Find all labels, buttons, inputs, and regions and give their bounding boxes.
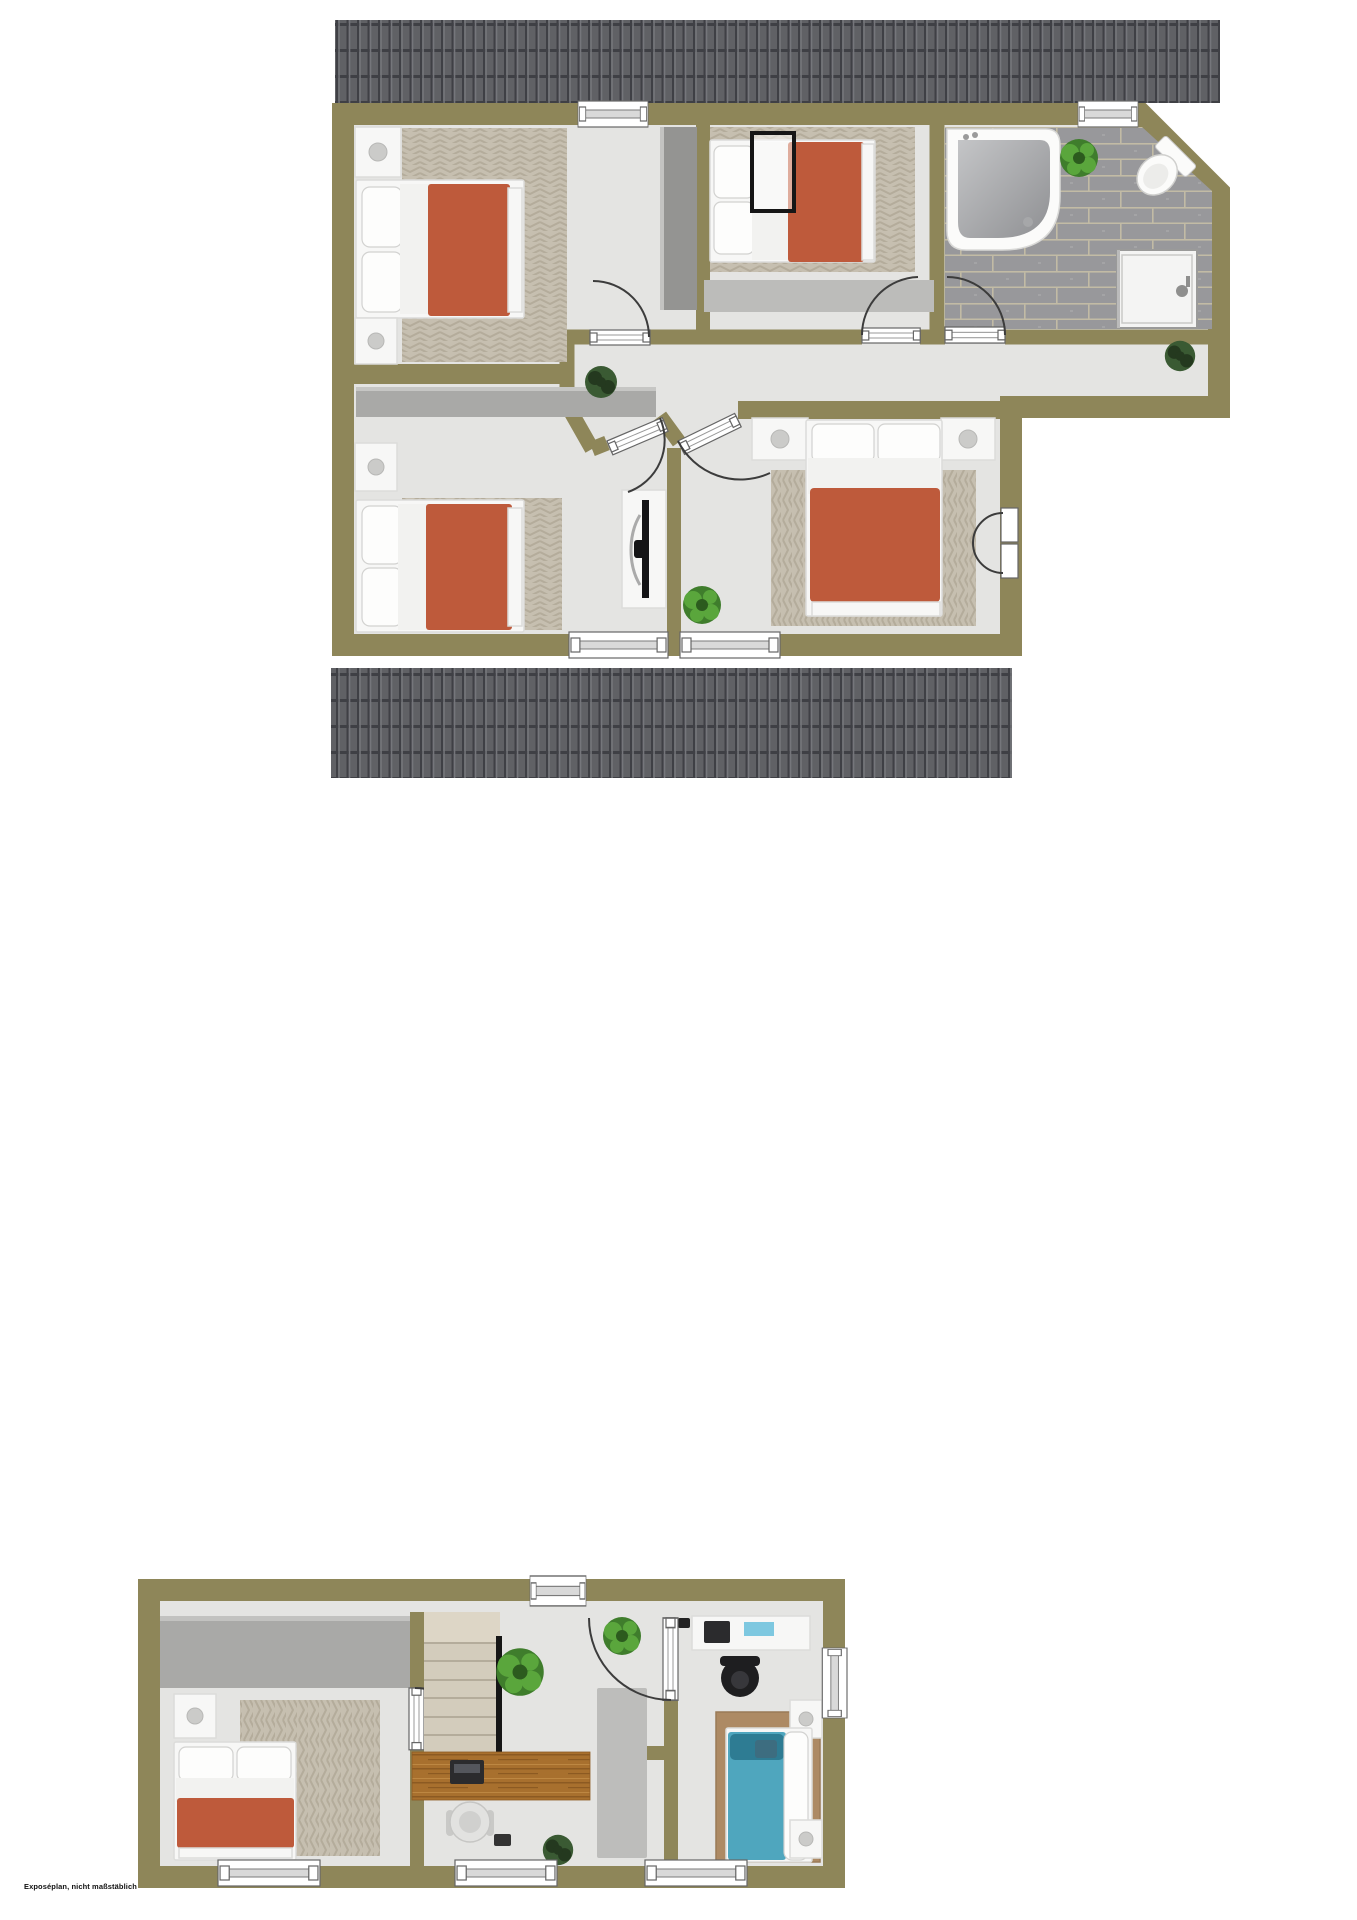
window — [569, 632, 668, 658]
lamp — [799, 1832, 813, 1846]
footboard — [179, 1848, 292, 1858]
plant — [1060, 139, 1098, 177]
runner-rug — [597, 1688, 647, 1858]
wardrobe — [160, 1616, 410, 1688]
plant — [585, 366, 617, 398]
wood-desk — [412, 1752, 590, 1800]
monitor — [744, 1622, 774, 1636]
floor-plan-page: Exposéplan, nicht maßstäblich — [0, 0, 1357, 1920]
roof-strip-top — [335, 20, 1220, 103]
ground-floor-plan — [149, 1576, 847, 1886]
window — [578, 101, 648, 127]
double-bed — [806, 420, 942, 616]
door — [862, 328, 920, 343]
plant — [683, 586, 721, 624]
bedroom-middle — [704, 127, 934, 343]
wardrobe — [660, 127, 697, 310]
plan-disclaimer-caption: Exposéplan, nicht maßstäblich — [24, 1882, 137, 1891]
lamp — [799, 1712, 813, 1726]
window — [455, 1860, 557, 1886]
lamp — [959, 430, 977, 448]
double-bed — [356, 180, 524, 318]
window — [680, 632, 780, 658]
corner-bathtub — [947, 129, 1060, 250]
footboard — [508, 508, 522, 626]
lamp — [771, 430, 789, 448]
lamp — [368, 333, 384, 349]
window — [1078, 101, 1138, 127]
footboard — [862, 144, 874, 260]
window — [822, 1648, 847, 1718]
tv-sideboard — [622, 490, 666, 608]
window — [530, 1576, 586, 1606]
shower — [1117, 250, 1197, 328]
door — [663, 1618, 678, 1700]
phone — [678, 1618, 690, 1628]
skylight-window — [752, 133, 794, 211]
lamp — [187, 1708, 203, 1724]
wardrobe — [704, 280, 934, 312]
door — [945, 327, 1005, 343]
window — [218, 1860, 320, 1886]
plant — [603, 1617, 641, 1655]
double-bed — [356, 500, 524, 632]
footboard — [812, 602, 940, 616]
plant — [1165, 341, 1195, 371]
notebook — [494, 1834, 511, 1846]
lamp — [369, 143, 387, 161]
laptop — [704, 1621, 730, 1643]
door — [590, 330, 650, 345]
upper-floor-plan — [331, 20, 1220, 778]
floor-plan-image — [0, 0, 1357, 1920]
plant — [496, 1648, 544, 1696]
double-bed — [174, 1742, 296, 1860]
window — [645, 1860, 747, 1886]
lamp — [368, 459, 384, 475]
door — [409, 1688, 424, 1750]
footboard — [508, 188, 522, 312]
roof-strip-bottom — [331, 668, 1012, 778]
